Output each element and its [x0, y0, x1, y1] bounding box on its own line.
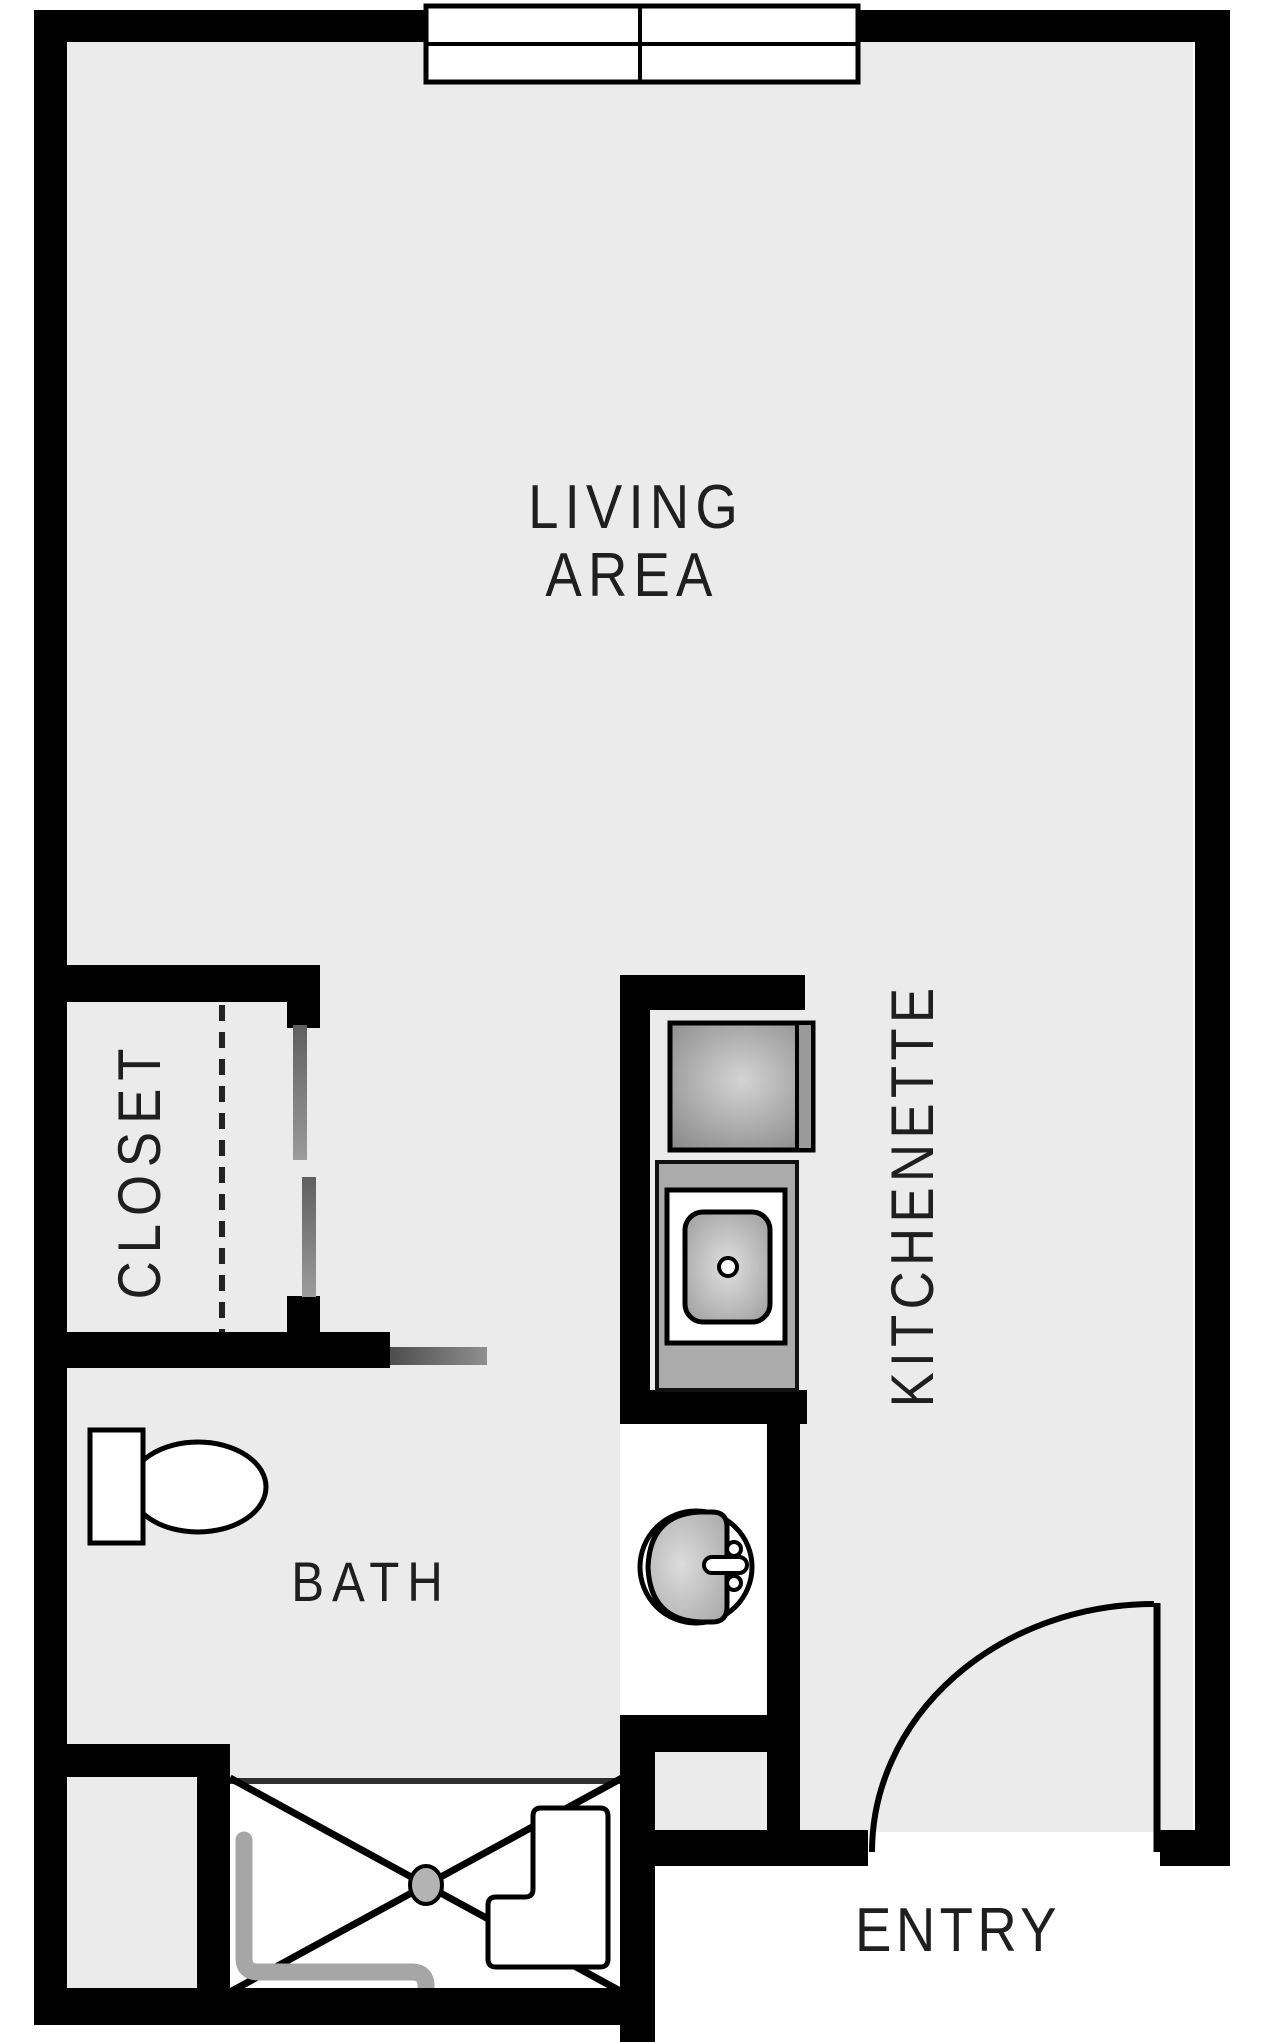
faucet-spout — [704, 1557, 747, 1573]
kitchenette-label: KITCHENETTE — [883, 983, 943, 1408]
wall-closet-top-stub — [287, 1002, 320, 1028]
alcove-floor — [67, 1744, 197, 1992]
wall-kitchen-top — [620, 975, 805, 1010]
kitchen-sink-drain — [719, 1258, 737, 1276]
faucet-handle-2 — [727, 1576, 741, 1590]
studio-floor-plan: LIVING AREA CLOSET KITCHENETTE BATH ENTR… — [0, 0, 1272, 2042]
wall-right — [1195, 10, 1230, 1866]
living-area-label-line1: LIVING — [528, 477, 744, 539]
pocket-door — [390, 1347, 487, 1365]
living-area-label-line2: AREA — [545, 545, 718, 607]
range-control-strip — [797, 1023, 813, 1150]
wall-alcove-right — [197, 1777, 230, 1992]
range — [670, 1023, 813, 1150]
toilet-tank — [90, 1430, 143, 1543]
window — [426, 6, 858, 82]
wall-alcove-top — [34, 1744, 230, 1777]
sliding-door-panel-2 — [302, 1177, 316, 1297]
wall-bath-right — [767, 1422, 800, 1832]
floor-plan-drawing — [0, 0, 1272, 2042]
wall-kitchen-left — [620, 975, 650, 1425]
faucet-handle-1 — [727, 1542, 741, 1556]
bath-label: BATH — [291, 1554, 450, 1610]
entry-label: ENTRY — [855, 1900, 1061, 1962]
kitchenette-fixtures — [657, 1023, 813, 1390]
wall-bottom-bath — [34, 1988, 655, 2025]
floor-drain — [410, 1866, 442, 1904]
toilet-bowl — [130, 1442, 266, 1532]
wall-closet-top — [67, 965, 320, 1002]
wall-below-counter — [620, 1390, 807, 1424]
wall-shower-right — [620, 1715, 655, 2042]
wall-closet-bottom — [34, 1332, 390, 1368]
wall-left — [34, 10, 67, 2025]
wall-entry-bottom-stub — [1160, 1830, 1230, 1866]
wall-entry-bottom — [648, 1830, 868, 1866]
closet-label: CLOSET — [110, 1041, 170, 1300]
sliding-door-panel-1 — [293, 1025, 307, 1160]
wall-closet-bottom-stub — [287, 1296, 320, 1334]
